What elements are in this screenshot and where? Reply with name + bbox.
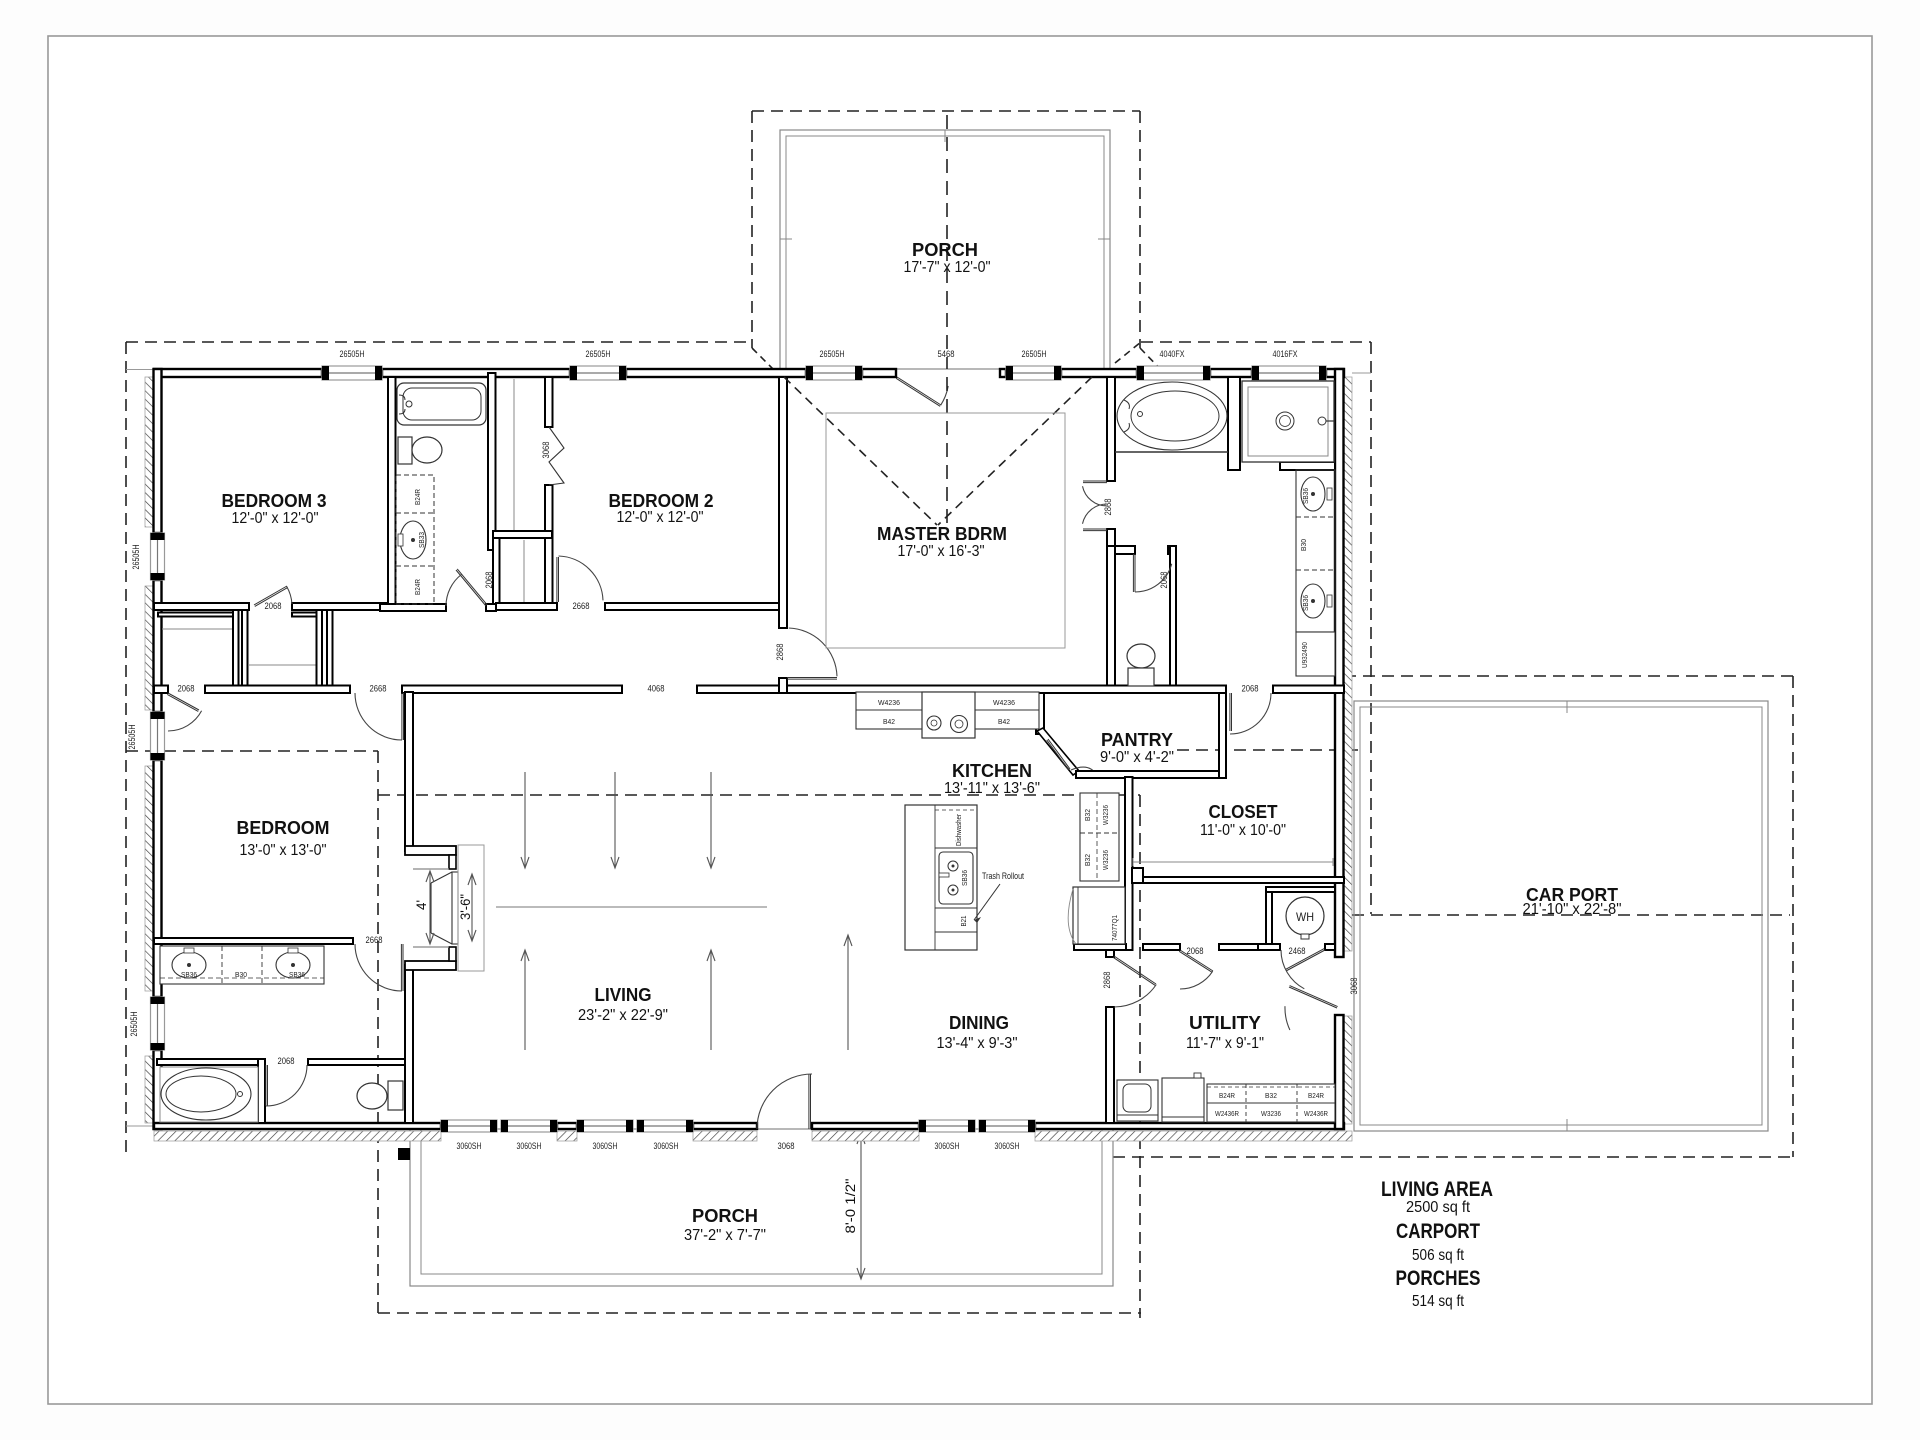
- svg-text:B32: B32: [1265, 1091, 1277, 1100]
- svg-text:4040FX: 4040FX: [1160, 349, 1185, 360]
- svg-text:B42: B42: [883, 717, 895, 726]
- svg-text:B24R: B24R: [1219, 1091, 1235, 1100]
- svg-text:3060SH: 3060SH: [593, 1141, 618, 1152]
- svg-text:2068: 2068: [265, 601, 282, 612]
- svg-text:3060SH: 3060SH: [654, 1141, 679, 1152]
- svg-text:4016FX: 4016FX: [1273, 349, 1298, 360]
- svg-text:B42: B42: [998, 717, 1010, 726]
- svg-text:17'-7" x 12'-0": 17'-7" x 12'-0": [904, 259, 991, 276]
- svg-text:37'-2" x 7'-7": 37'-2" x 7'-7": [684, 1227, 766, 1244]
- svg-text:74077Q1: 74077Q1: [1110, 915, 1119, 941]
- svg-text:U932490: U932490: [1300, 642, 1309, 668]
- svg-text:11'-7" x 9'-1": 11'-7" x 9'-1": [1186, 1035, 1264, 1052]
- svg-text:DINING: DINING: [949, 1013, 1009, 1033]
- svg-text:23'-2" x 22'-9": 23'-2" x 22'-9": [578, 1007, 668, 1024]
- svg-text:SB36: SB36: [289, 970, 305, 979]
- svg-text:26505H: 26505H: [1022, 349, 1047, 360]
- svg-text:BEDROOM 2: BEDROOM 2: [609, 491, 714, 511]
- svg-text:W4236: W4236: [993, 698, 1015, 707]
- svg-text:SB36: SB36: [1301, 488, 1310, 504]
- svg-text:BEDROOM: BEDROOM: [237, 818, 330, 838]
- svg-text:12'-0" x 12'-0": 12'-0" x 12'-0": [617, 509, 704, 526]
- svg-text:W2436R: W2436R: [1304, 1109, 1328, 1118]
- svg-text:SB36: SB36: [1301, 595, 1310, 611]
- svg-text:3'-6": 3'-6": [458, 894, 473, 920]
- svg-text:2668: 2668: [370, 684, 387, 695]
- svg-text:11'-0" x 10'-0": 11'-0" x 10'-0": [1200, 822, 1286, 839]
- svg-text:B30: B30: [1299, 539, 1308, 551]
- svg-text:2068: 2068: [1159, 572, 1170, 589]
- svg-text:4': 4': [414, 900, 429, 910]
- svg-text:8'-0 1/2": 8'-0 1/2": [843, 1178, 858, 1233]
- svg-text:2868: 2868: [1102, 972, 1113, 989]
- svg-text:B21: B21: [959, 916, 968, 927]
- svg-text:Dishwasher: Dishwasher: [954, 814, 963, 846]
- svg-text:26505H: 26505H: [586, 349, 611, 360]
- svg-text:21'-10" x 22'-8": 21'-10" x 22'-8": [1523, 901, 1622, 918]
- svg-text:UTILITY: UTILITY: [1189, 1013, 1261, 1033]
- svg-text:LIVING: LIVING: [595, 985, 652, 1005]
- svg-text:PORCHES: PORCHES: [1396, 1267, 1481, 1290]
- svg-text:W3236: W3236: [1101, 805, 1110, 825]
- svg-text:PANTRY: PANTRY: [1101, 730, 1173, 750]
- svg-text:PORCH: PORCH: [912, 240, 978, 260]
- svg-text:SB36: SB36: [181, 970, 197, 979]
- svg-text:26505H: 26505H: [131, 544, 142, 569]
- svg-text:26505H: 26505H: [820, 349, 845, 360]
- svg-text:13'-4" x 9'-3": 13'-4" x 9'-3": [937, 1035, 1018, 1052]
- svg-text:PORCH: PORCH: [692, 1205, 758, 1226]
- svg-text:3060SH: 3060SH: [995, 1141, 1020, 1152]
- svg-text:B32: B32: [1083, 809, 1092, 821]
- svg-text:26505H: 26505H: [129, 1011, 140, 1036]
- svg-text:B32: B32: [1083, 854, 1092, 866]
- svg-text:WH: WH: [1296, 910, 1314, 924]
- svg-text:12'-0" x 12'-0": 12'-0" x 12'-0": [232, 510, 319, 527]
- svg-text:2668: 2668: [573, 601, 590, 612]
- svg-text:2668: 2668: [366, 935, 383, 946]
- svg-text:2500 sq ft: 2500 sq ft: [1406, 1199, 1470, 1216]
- svg-text:3068: 3068: [1349, 978, 1360, 995]
- svg-text:4068: 4068: [648, 684, 665, 695]
- svg-text:CLOSET: CLOSET: [1209, 802, 1278, 822]
- svg-text:17'-0" x 16'-3": 17'-0" x 16'-3": [898, 543, 985, 560]
- svg-text:MASTER BDRM: MASTER BDRM: [877, 524, 1007, 544]
- svg-text:SB33: SB33: [417, 532, 426, 548]
- svg-text:2868: 2868: [775, 644, 786, 661]
- svg-text:2068: 2068: [278, 1056, 295, 1067]
- svg-text:W3236: W3236: [1101, 850, 1110, 870]
- svg-text:13'-0" x 13'-0": 13'-0" x 13'-0": [240, 842, 327, 859]
- svg-text:BEDROOM 3: BEDROOM 3: [222, 491, 327, 511]
- svg-text:9'-0" x 4'-2": 9'-0" x 4'-2": [1100, 749, 1174, 766]
- svg-text:W4236: W4236: [878, 698, 900, 707]
- svg-text:2068: 2068: [178, 684, 195, 695]
- svg-text:26505H: 26505H: [340, 349, 365, 360]
- svg-text:B24R: B24R: [413, 579, 422, 595]
- svg-text:5468: 5468: [938, 349, 955, 360]
- svg-text:W2436R: W2436R: [1215, 1109, 1239, 1118]
- svg-text:SB36: SB36: [960, 870, 969, 886]
- svg-text:Trash Rollout: Trash Rollout: [982, 871, 1024, 882]
- svg-text:2468: 2468: [1289, 946, 1306, 957]
- svg-text:3060SH: 3060SH: [935, 1141, 960, 1152]
- svg-text:W3236: W3236: [1261, 1109, 1281, 1118]
- svg-text:26505H: 26505H: [127, 724, 138, 749]
- svg-text:2068: 2068: [1242, 684, 1259, 695]
- svg-text:13'-11" x 13'-6": 13'-11" x 13'-6": [944, 780, 1040, 797]
- svg-text:2868: 2868: [1103, 499, 1114, 516]
- svg-text:3068: 3068: [541, 442, 552, 459]
- svg-text:B24R: B24R: [1308, 1091, 1324, 1100]
- svg-text:B30: B30: [235, 970, 247, 979]
- svg-text:LIVING AREA: LIVING AREA: [1381, 1178, 1493, 1201]
- svg-text:3060SH: 3060SH: [457, 1141, 482, 1152]
- svg-text:KITCHEN: KITCHEN: [952, 761, 1032, 781]
- svg-text:CARPORT: CARPORT: [1396, 1220, 1480, 1243]
- svg-text:3068: 3068: [778, 1141, 795, 1152]
- svg-text:3060SH: 3060SH: [517, 1141, 542, 1152]
- svg-text:506 sq ft: 506 sq ft: [1412, 1247, 1464, 1264]
- svg-text:514 sq ft: 514 sq ft: [1412, 1293, 1464, 1310]
- svg-text:B24R: B24R: [413, 489, 422, 505]
